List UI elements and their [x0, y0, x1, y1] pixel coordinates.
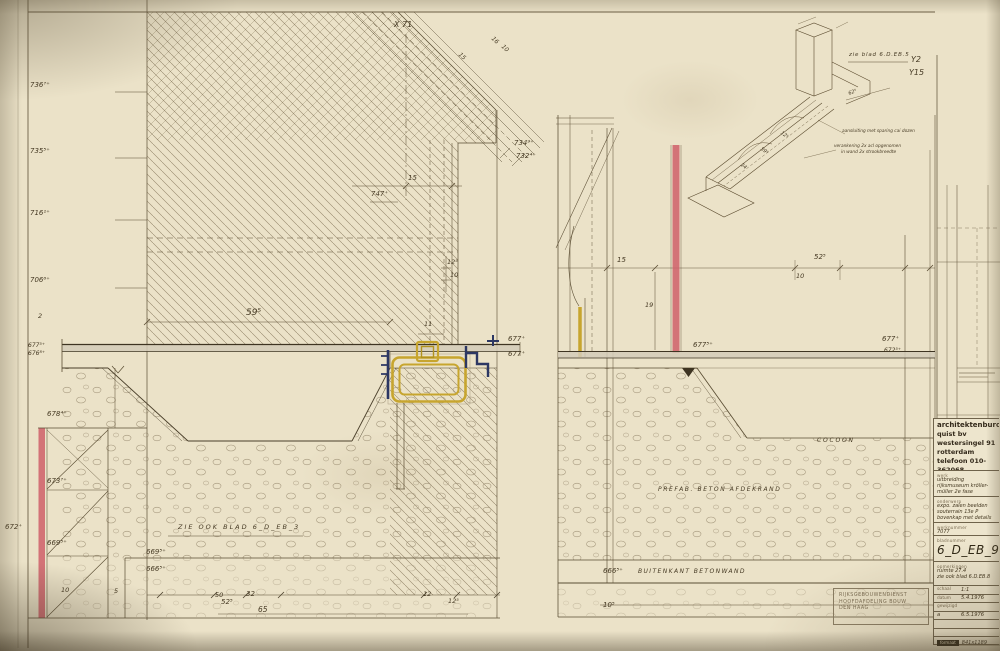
dim-label: 52⁵ [221, 599, 233, 606]
elevation-label: 672⁺ [5, 524, 22, 531]
datum-label: datum [937, 596, 961, 601]
datum-value: 5.4.1976 [961, 595, 984, 601]
elevation-label: 672⁵⁺ [884, 348, 901, 354]
axon-note: aansluiting met sparing cai dozen [842, 130, 915, 134]
elevation-label: 732⁴⁺ [516, 153, 536, 160]
werk-value: uitbreiding rijksmuseum kröller-müller 2… [937, 478, 996, 495]
dim-label: 62⁵ [848, 89, 858, 97]
formaat-label: formaat [937, 640, 959, 646]
dim-label: 52⁵ [814, 254, 826, 261]
elevation-label: 666⁵⁺ [146, 566, 166, 573]
elevation-label: 676⁸⁺ [28, 351, 45, 357]
worknumber-section: werknummer 7077 [934, 523, 999, 536]
dim-label: 15 [408, 175, 417, 182]
rgd-stamp: RIJKSGEBOUWENDIENST HOOFDAFDELING BOUW D… [833, 588, 929, 625]
axon-note: verankering 2x acl opgenomen [834, 145, 901, 149]
gewijzigd-label: gewijzigd [937, 604, 961, 609]
dim-label: 10 [796, 273, 804, 280]
dim-label: 10 [61, 587, 69, 594]
drawing-sheet: 736⁷⁺735⁵⁺716¹⁺706⁶⁺677⁵⁺676⁸⁺678⁴⁺673⁷⁺… [0, 0, 1000, 651]
dim-label: 59⁵ [246, 309, 261, 318]
firm-address: westersingel 91 [937, 439, 996, 448]
grid-ref-x: X 71 [394, 21, 412, 29]
dim-label: 10⁵ [603, 602, 615, 609]
dim-label: 16 [490, 36, 500, 46]
annotation-layer: 736⁷⁺735⁵⁺716¹⁺706⁶⁺677⁵⁺676⁸⁺678⁴⁺673⁷⁺… [0, 0, 1000, 651]
elevation-label: 669⁵⁺ [47, 540, 67, 547]
remarks-section: opmerkingen ruimte 27.4 zie ook blad 6.D… [934, 562, 999, 586]
dim-label: 15 [457, 52, 467, 62]
dim-label: 65 [258, 606, 268, 614]
axon-note: in wand 2x strookbreedte [841, 151, 896, 155]
dim-label: 12⁵ [447, 259, 458, 266]
grid-ref-y: Y2 [911, 56, 921, 64]
elevation-label: 677⁺ [508, 336, 525, 343]
revision-a-row: a 6.5.1976 [934, 612, 999, 621]
dim-label: 12⁵ [779, 131, 789, 140]
firm-phone: telefoon 010-362068 [937, 457, 996, 471]
elevation-label: 677⁺ [508, 351, 525, 358]
schaal-label: schaal [937, 587, 961, 592]
scale-row: schaal 1:1 [934, 586, 999, 595]
grid-ref-y: Y15 [909, 69, 924, 77]
format-row: formaat 841x1189 [934, 637, 999, 649]
formaat-value: 841x1189 [962, 640, 987, 646]
gewijzigd-index: a [937, 612, 961, 618]
dim-label: 11 [424, 321, 432, 328]
elevation-label: 669⁵⁺ [146, 549, 166, 556]
firm-identity: architektenburo quist bv westersingel 91… [934, 419, 999, 471]
project-section: werk uitbreiding rijksmuseum kröller-mül… [934, 471, 999, 497]
elevation-label: 734⁹⁺ [514, 140, 534, 147]
material-note: BUITENKANT BETONWAND [638, 569, 746, 575]
firm-city: rotterdam [937, 448, 996, 457]
date-row: datum 5.4.1976 [934, 595, 999, 604]
elevation-label: 677⁵⁺ [693, 342, 713, 349]
firm-line: quist bv [937, 430, 996, 439]
empty-row [934, 629, 999, 638]
opmerkingen-2: zie ook blad 6.D.EB.8 [937, 575, 996, 581]
dim-label: 5 [114, 588, 118, 595]
schaal-value: 1:1 [961, 587, 969, 593]
revision-label-row: gewijzigd [934, 603, 999, 612]
elevation-label: 678⁴⁺ [47, 411, 67, 418]
sheet-number: 6_D_EB_9 [937, 543, 996, 557]
elevation-label: 716¹⁺ [30, 210, 50, 217]
stamp-line3: DEN HAAG [839, 606, 923, 613]
elevation-label: 735⁵⁺ [30, 148, 50, 155]
onderwerp-value: expo. zalen beelden souterrain 13e P bov… [937, 504, 996, 521]
dim-label: 2 [38, 313, 42, 320]
subject-section: onderwerp expo. zalen beelden souterrain… [934, 497, 999, 523]
elevation-label: 677⁵⁺ [28, 343, 45, 349]
dim-label: 12 [423, 591, 431, 598]
dim-label: 10 [450, 272, 458, 279]
dim-label: 19 [645, 302, 653, 309]
werknummer-value: 7077 [937, 530, 996, 536]
dim-label: 59⁵ [759, 147, 769, 156]
material-note: PREFAB. BETON AFDEKRAND [658, 487, 782, 493]
elevation-label: 706⁶⁺ [30, 277, 50, 284]
dim-label: 15 [617, 257, 626, 264]
elevation-label: 736⁷⁺ [30, 82, 50, 89]
empty-row [934, 620, 999, 629]
title-block: architektenburo quist bv westersingel 91… [933, 418, 999, 645]
dim-label: 24 [739, 163, 747, 171]
dim-label: 10 [500, 44, 510, 54]
gewijzigd-date: 6.5.1976 [961, 612, 984, 618]
cocoon-label: COCOON [817, 438, 855, 444]
sheet-ref-note: ZIE OOK BLAD 6_D_EB_3 [178, 524, 300, 531]
elevation-label: 677⁺ [882, 336, 899, 343]
elevation-label: 673⁷⁺ [47, 478, 67, 485]
firm-name: architektenburo [937, 421, 996, 430]
sheet-ref-note: zie blad 6.D.EB.5 [849, 53, 910, 59]
sheetnumber-section: bladnummer 6_D_EB_9 [934, 536, 999, 562]
dim-label: 12⁵ [448, 598, 459, 605]
elevation-label: 666⁵⁺ [603, 568, 623, 575]
elevation-label: 747⁺ [371, 191, 388, 198]
dim-label: 32 [246, 591, 255, 598]
